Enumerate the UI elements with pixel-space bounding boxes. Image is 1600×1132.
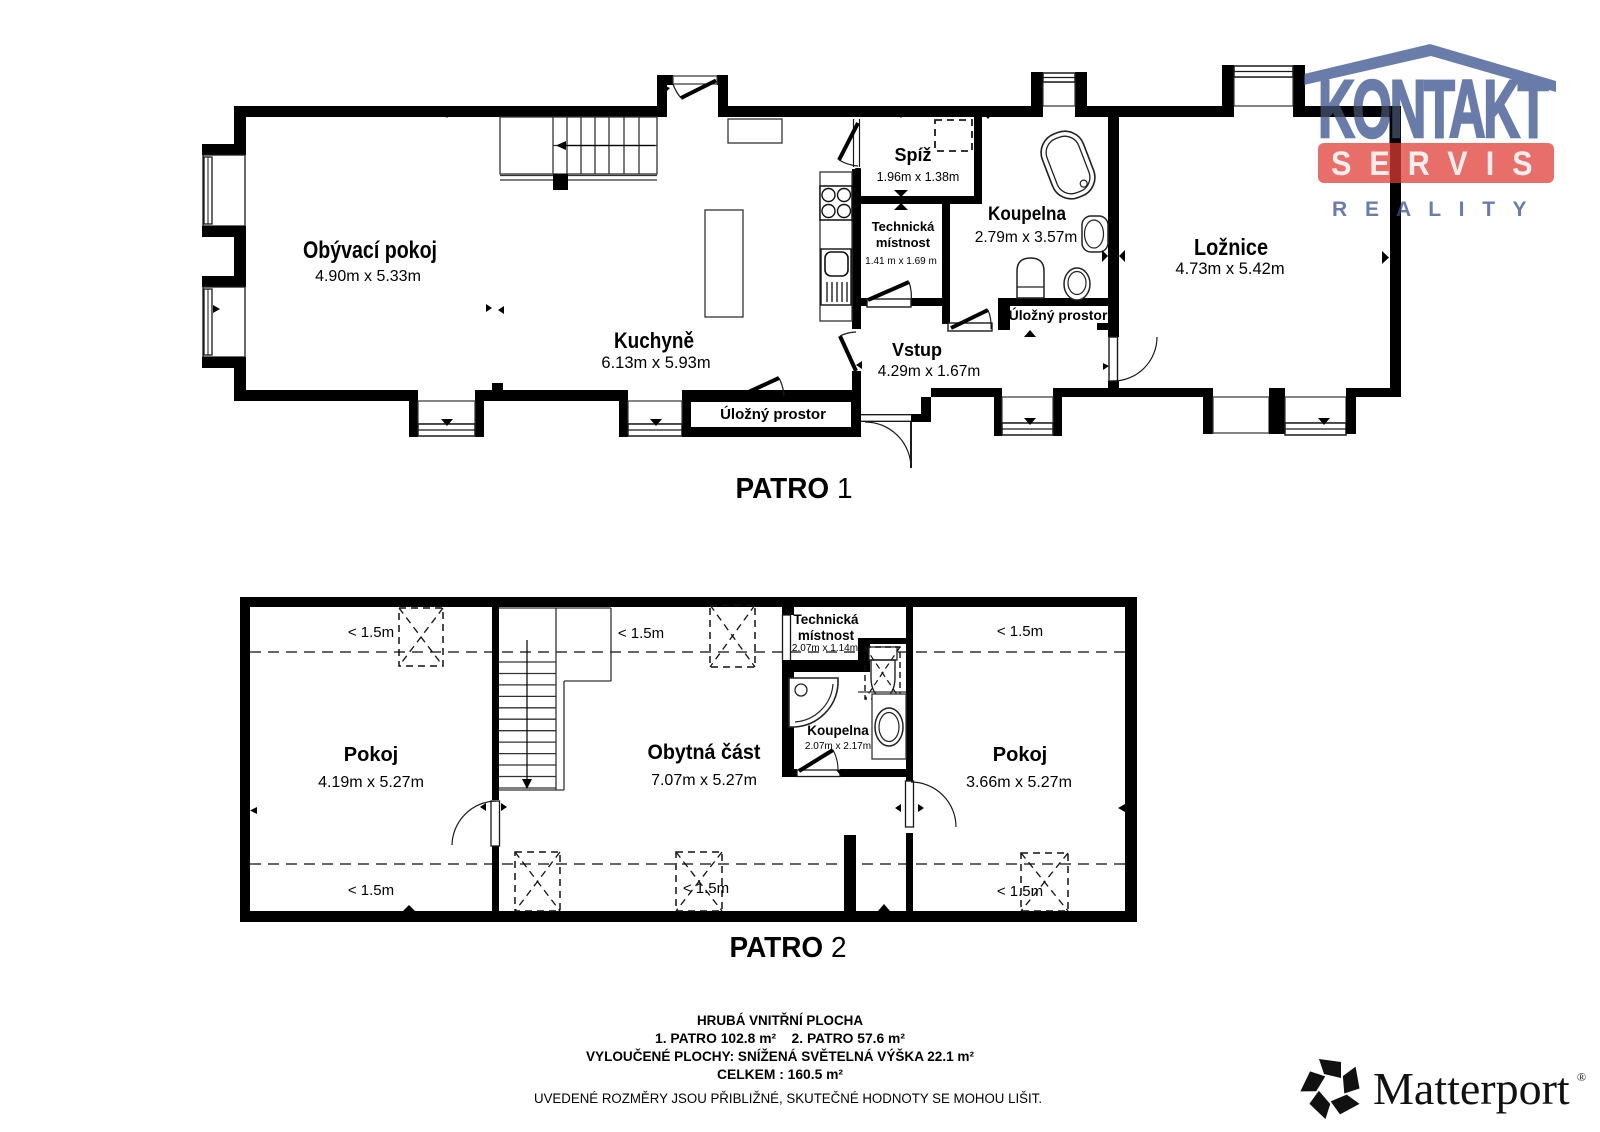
svg-text:4.29m x 1.67m: 4.29m x 1.67m	[878, 363, 981, 380]
svg-text:7.07m x 5.27m: 7.07m x 5.27m	[651, 772, 757, 789]
svg-text:2.07m x 2.17m: 2.07m x 2.17m	[805, 741, 871, 752]
svg-text:Koupelna: Koupelna	[807, 723, 869, 738]
svg-text:VYLOUČENÉ PLOCHY: SNÍŽENÁ SVĚT: VYLOUČENÉ PLOCHY: SNÍŽENÁ SVĚTELNÁ VÝŠKA…	[586, 1049, 975, 1064]
svg-text:Vstup: Vstup	[892, 340, 942, 360]
svg-text:CELKEM : 160.5 m²: CELKEM : 160.5 m²	[717, 1067, 844, 1082]
svg-text:místnost: místnost	[798, 628, 855, 643]
svg-text:2.79m x 3.57m: 2.79m x 3.57m	[975, 229, 1078, 246]
svg-text:Koupelna: Koupelna	[988, 204, 1066, 225]
svg-text:4.19m x 5.27m: 4.19m x 5.27m	[318, 774, 424, 791]
svg-text:Ložnice: Ložnice	[1194, 234, 1268, 260]
svg-text:1.96m x 1.38m: 1.96m x 1.38m	[877, 170, 960, 184]
svg-text:Matterport: Matterport	[1373, 1063, 1570, 1114]
svg-text:Pokoj: Pokoj	[993, 744, 1047, 766]
svg-text:< 1.5m: < 1.5m	[348, 624, 394, 641]
svg-text:3.66m x 5.27m: 3.66m x 5.27m	[966, 774, 1072, 791]
svg-text:< 1.5m: < 1.5m	[683, 880, 729, 897]
svg-text:Obývací pokoj: Obývací pokoj	[303, 237, 437, 264]
svg-text:Spíž: Spíž	[894, 145, 931, 165]
svg-text:< 1.5m: < 1.5m	[997, 883, 1043, 900]
svg-text:®: ®	[1577, 1070, 1586, 1084]
svg-text:R E A L I T Y: R E A L I T Y	[1332, 198, 1533, 221]
svg-text:PATRO 2: PATRO 2	[730, 932, 847, 964]
svg-text:Pokoj: Pokoj	[344, 744, 398, 766]
svg-text:PATRO 1: PATRO 1	[736, 473, 853, 505]
svg-text:4.73m x 5.42m: 4.73m x 5.42m	[1175, 260, 1284, 278]
svg-text:< 1.5m: < 1.5m	[997, 623, 1043, 640]
svg-text:Obytná část: Obytná část	[648, 741, 761, 764]
svg-text:2.07m x 1.14m: 2.07m x 1.14m	[792, 643, 858, 654]
svg-text:UVEDENÉ ROZMĚRY JSOU PŘIBLIŽNÉ: UVEDENÉ ROZMĚRY JSOU PŘIBLIŽNÉ, SKUTEČNÉ…	[534, 1091, 1042, 1106]
svg-text:Úložný prostor: Úložný prostor	[1009, 306, 1108, 323]
svg-text:1.41 m x 1.69 m: 1.41 m x 1.69 m	[865, 256, 937, 267]
svg-text:místnost: místnost	[876, 235, 931, 250]
svg-text:< 1.5m: < 1.5m	[618, 625, 664, 642]
svg-text:Technická: Technická	[872, 219, 935, 234]
svg-text:1. PATRO 102.8 m² 2. PATRO: 1. PATRO 102.8 m² 2. PATRO 57.6 m²	[655, 1031, 906, 1046]
svg-text:Kuchyně: Kuchyně	[614, 328, 694, 353]
svg-text:6.13m x 5.93m: 6.13m x 5.93m	[601, 354, 710, 372]
svg-text:HRUBÁ VNITŘNÍ PLOCHA: HRUBÁ VNITŘNÍ PLOCHA	[697, 1013, 863, 1028]
svg-text:Technická: Technická	[793, 612, 859, 627]
svg-text:Úložný prostor: Úložný prostor	[720, 405, 826, 423]
svg-text:4.90m x 5.33m: 4.90m x 5.33m	[315, 268, 421, 285]
svg-text:< 1.5m: < 1.5m	[348, 882, 394, 899]
